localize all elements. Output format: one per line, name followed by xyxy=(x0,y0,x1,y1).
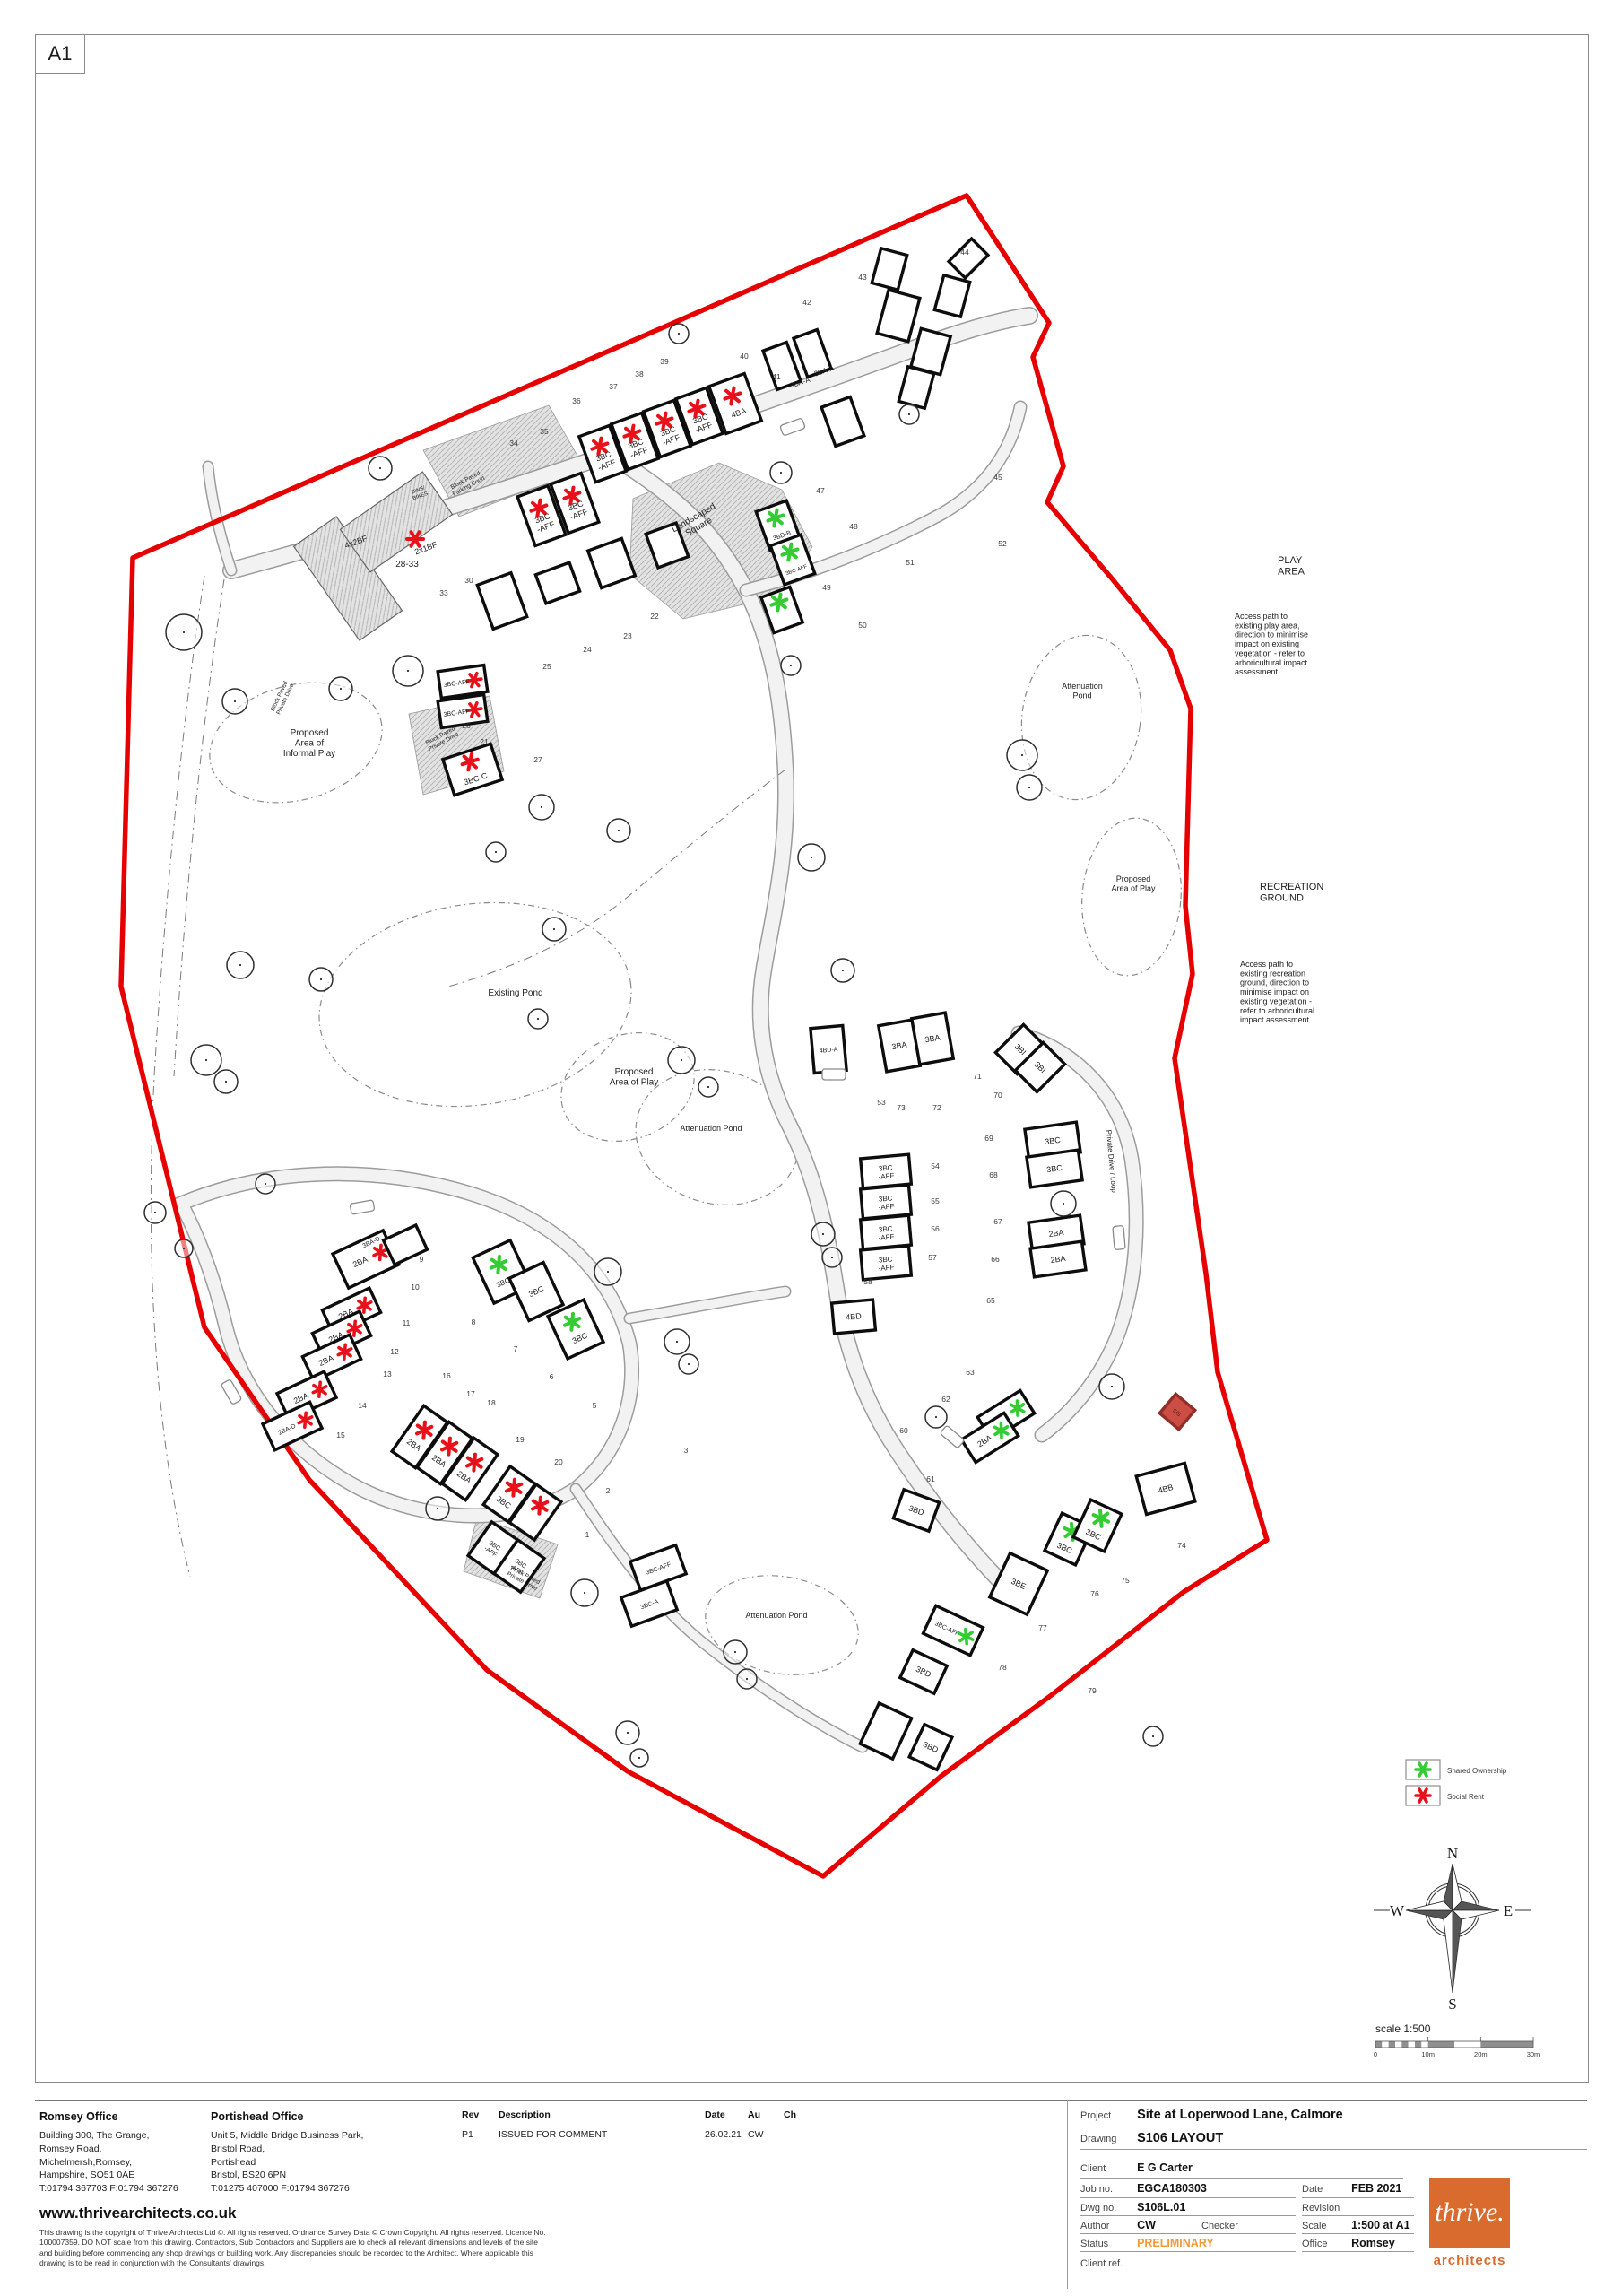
svg-text:scale 1:500: scale 1:500 xyxy=(1375,2022,1431,2035)
portishead-office-title: Portishead Office xyxy=(211,2109,399,2126)
svg-text:57: 57 xyxy=(928,1253,937,1262)
svg-text:35: 35 xyxy=(540,427,549,436)
svg-text:72: 72 xyxy=(932,1103,941,1112)
client-label: Client xyxy=(1080,2163,1134,2174)
svg-text:3BC-AFF: 3BC-AFF xyxy=(877,1255,894,1273)
svg-text:27: 27 xyxy=(533,755,542,764)
svg-text:50: 50 xyxy=(858,621,867,630)
svg-text:12: 12 xyxy=(390,1347,399,1356)
svg-text:70: 70 xyxy=(993,1091,1002,1100)
svg-text:3: 3 xyxy=(684,1446,689,1455)
svg-text:74: 74 xyxy=(1177,1541,1186,1550)
date-label: Date xyxy=(1302,2184,1349,2195)
rev-cell: P1 xyxy=(462,2129,473,2140)
svg-text:10m: 10m xyxy=(1421,2050,1435,2058)
romsey-office-line: Romsey Road, xyxy=(39,2143,205,2156)
svg-text:ProposedArea of Play: ProposedArea of Play xyxy=(610,1067,658,1088)
svg-text:AttenuationPond: AttenuationPond xyxy=(1062,682,1103,700)
svg-text:Block PavedPrivate Drive: Block PavedPrivate Drive xyxy=(270,680,296,716)
rule xyxy=(1080,2178,1403,2179)
svg-text:44: 44 xyxy=(960,248,969,257)
status-label: Status xyxy=(1080,2239,1134,2249)
svg-text:62: 62 xyxy=(941,1395,950,1404)
thrive-logo: thrive. xyxy=(1429,2178,1510,2248)
svg-text:ProposedArea ofInformal Play: ProposedArea ofInformal Play xyxy=(283,728,335,759)
checker-row: Checker xyxy=(1201,2219,1296,2231)
date-value: FEB 2021 xyxy=(1351,2182,1401,2195)
drawing-sheet: A1 3BC-AFF3BC-AFF3BC-AFF3BC-AFF3BC-AFF3B… xyxy=(0,0,1622,2296)
rule xyxy=(1080,2215,1296,2216)
svg-text:41: 41 xyxy=(772,372,781,381)
svg-text:58: 58 xyxy=(863,1277,872,1286)
project-value: Site at Loperwood Lane, Calmore xyxy=(1137,2108,1343,2122)
svg-text:W: W xyxy=(1390,1902,1405,1919)
svg-text:37: 37 xyxy=(609,382,618,391)
svg-text:18: 18 xyxy=(487,1398,496,1407)
svg-text:48: 48 xyxy=(849,522,858,531)
thrive-logo-sub: architects xyxy=(1429,2253,1510,2268)
svg-text:25: 25 xyxy=(542,662,551,671)
checker-label: Checker xyxy=(1201,2221,1255,2231)
rule xyxy=(1302,2197,1414,2198)
compass-rose: NESW xyxy=(1374,1845,1531,2013)
office-label: Office xyxy=(1302,2239,1349,2249)
svg-text:26: 26 xyxy=(462,721,471,730)
job-row: Job no. EGCA180303 xyxy=(1080,2182,1296,2195)
svg-text:11: 11 xyxy=(403,1318,411,1327)
client-row: Client E G Carter xyxy=(1080,2161,1403,2174)
status-row: Status PRELIMINARY xyxy=(1080,2237,1296,2249)
author-value: CW xyxy=(1137,2219,1156,2231)
svg-text:79: 79 xyxy=(1088,1686,1097,1695)
clientref-row: Client ref. xyxy=(1080,2257,1296,2269)
svg-text:13: 13 xyxy=(383,1370,392,1378)
svg-text:75: 75 xyxy=(1121,1576,1130,1585)
revision-row: Revision xyxy=(1302,2201,1414,2213)
rule xyxy=(1302,2251,1414,2252)
project-label: Project xyxy=(1080,2110,1134,2121)
svg-text:39: 39 xyxy=(660,357,669,366)
scale-label: Scale xyxy=(1302,2221,1349,2231)
rev-col-header: Date xyxy=(705,2109,725,2120)
office-value: Romsey xyxy=(1351,2237,1395,2249)
svg-text:N: N xyxy=(1447,1845,1458,1862)
svg-text:52: 52 xyxy=(998,539,1007,548)
svg-text:53: 53 xyxy=(877,1098,886,1107)
scale-bar: scale 1:500010m20m30m xyxy=(1374,2022,1540,2058)
svg-text:24: 24 xyxy=(583,645,592,654)
svg-text:14: 14 xyxy=(358,1401,367,1410)
svg-text:RECREATIONGROUND: RECREATIONGROUND xyxy=(1260,882,1323,904)
svg-text:ProposedArea of Play: ProposedArea of Play xyxy=(1111,874,1156,892)
svg-text:56: 56 xyxy=(931,1224,940,1233)
svg-text:17: 17 xyxy=(466,1389,475,1398)
svg-text:30m: 30m xyxy=(1527,2050,1540,2058)
svg-text:20: 20 xyxy=(554,1457,563,1466)
job-label: Job no. xyxy=(1080,2184,1134,2195)
drawing-row: Drawing S106 LAYOUT xyxy=(1080,2131,1587,2145)
rev-cell: CW xyxy=(748,2129,764,2140)
svg-text:9: 9 xyxy=(420,1255,424,1264)
svg-text:71: 71 xyxy=(973,1072,982,1081)
romsey-office-block: Romsey Office Building 300, The Grange, … xyxy=(39,2109,205,2196)
legend: Shared OwnershipSocial Rent xyxy=(1406,1760,1507,1805)
svg-text:30: 30 xyxy=(464,576,473,585)
svg-text:42: 42 xyxy=(802,298,811,307)
rule xyxy=(1080,2126,1587,2126)
office-row: Office Romsey xyxy=(1302,2237,1414,2249)
scale-value: 1:500 at A1 xyxy=(1351,2219,1410,2231)
svg-text:7: 7 xyxy=(514,1344,518,1353)
client-value: E G Carter xyxy=(1137,2161,1193,2174)
rev-col-header: Au xyxy=(748,2109,760,2120)
rev-col-header: Ch xyxy=(784,2109,796,2120)
svg-text:20m: 20m xyxy=(1474,2050,1488,2058)
rev-cell: ISSUED FOR COMMENT xyxy=(499,2129,607,2140)
rule xyxy=(1080,2251,1296,2252)
site-plan-svg: 3BC-AFF3BC-AFF3BC-AFF3BC-AFF3BC-AFF3BC-A… xyxy=(0,0,1622,2296)
svg-text:47: 47 xyxy=(816,486,825,495)
svg-text:45: 45 xyxy=(993,473,1002,482)
svg-text:Private Drive / Loop: Private Drive / Loop xyxy=(1105,1129,1118,1193)
svg-text:1: 1 xyxy=(585,1530,590,1539)
svg-text:5: 5 xyxy=(593,1401,597,1410)
rule xyxy=(1302,2233,1414,2234)
svg-text:Existing Pond: Existing Pond xyxy=(488,988,542,998)
svg-text:67: 67 xyxy=(993,1217,1002,1226)
svg-text:21: 21 xyxy=(480,737,489,746)
svg-text:10: 10 xyxy=(411,1283,420,1291)
rule xyxy=(1080,2197,1296,2198)
svg-text:8: 8 xyxy=(472,1318,476,1326)
author-label: Author xyxy=(1080,2221,1134,2231)
svg-text:Access path toexisting recreat: Access path toexisting recreationground,… xyxy=(1240,960,1314,1024)
svg-text:E: E xyxy=(1504,1902,1513,1919)
svg-text:40: 40 xyxy=(740,352,749,361)
portishead-office-line: Bristol, BS20 6PN xyxy=(211,2169,399,2182)
dwg-value: S106L.01 xyxy=(1137,2201,1185,2213)
romsey-office-line: Michelmersh,Romsey, xyxy=(39,2156,205,2170)
svg-text:38: 38 xyxy=(635,370,644,378)
portishead-office-line: T:01275 407000 F:01794 367276 xyxy=(211,2182,399,2196)
svg-text:PLAYAREA: PLAYAREA xyxy=(1278,555,1305,578)
svg-text:76: 76 xyxy=(1090,1589,1099,1598)
portishead-office-line: Portishead xyxy=(211,2156,399,2170)
revision-label: Revision xyxy=(1302,2203,1349,2213)
romsey-office-line: Hampshire, SO51 0AE xyxy=(39,2169,205,2182)
thrive-logo-word: thrive. xyxy=(1435,2197,1504,2228)
copyright-disclaimer: This drawing is the copyright of Thrive … xyxy=(39,2228,546,2269)
svg-text:61: 61 xyxy=(926,1474,935,1483)
svg-text:Attenuation Pond: Attenuation Pond xyxy=(680,1124,742,1133)
svg-text:Access path toexisting play ar: Access path toexisting play area,directi… xyxy=(1235,612,1308,676)
scale-row: Scale 1:500 at A1 xyxy=(1302,2219,1414,2231)
job-value: EGCA180303 xyxy=(1137,2182,1207,2195)
svg-text:60: 60 xyxy=(899,1426,908,1435)
svg-text:23: 23 xyxy=(623,631,632,640)
svg-text:51: 51 xyxy=(906,558,915,567)
titleblock-divider xyxy=(1067,2100,1068,2289)
site-boundary-line xyxy=(121,196,1267,1876)
svg-text:2: 2 xyxy=(606,1486,611,1495)
svg-text:73: 73 xyxy=(897,1103,906,1112)
romsey-office-line: T:01794 367703 F:01794 367276 xyxy=(39,2182,205,2196)
svg-text:78: 78 xyxy=(998,1663,1007,1672)
svg-text:4BD: 4BD xyxy=(846,1311,863,1322)
dwg-label: Dwg no. xyxy=(1080,2203,1134,2213)
svg-text:43: 43 xyxy=(858,273,867,282)
svg-text:Shared Ownership: Shared Ownership xyxy=(1447,1767,1507,1775)
portishead-office-line: Bristol Road, xyxy=(211,2143,399,2156)
svg-text:22: 22 xyxy=(650,612,659,621)
svg-text:36: 36 xyxy=(572,396,581,405)
author-row: Author CW xyxy=(1080,2219,1197,2231)
svg-text:Social Rent: Social Rent xyxy=(1447,1793,1485,1801)
svg-text:Attenuation Pond: Attenuation Pond xyxy=(745,1611,807,1620)
portishead-office-block: Portishead Office Unit 5, Middle Bridge … xyxy=(211,2109,399,2196)
status-badge: PRELIMINARY xyxy=(1137,2237,1214,2249)
romsey-office-title: Romsey Office xyxy=(39,2109,205,2126)
rule xyxy=(1080,2233,1296,2234)
portishead-office-line: Unit 5, Middle Bridge Business Park, xyxy=(211,2129,399,2143)
titleblock-top-rule xyxy=(35,2100,1587,2101)
sheet-format-badge: A1 xyxy=(35,34,85,74)
svg-text:33: 33 xyxy=(439,588,448,597)
svg-text:3BC-AFF: 3BC-AFF xyxy=(877,1224,894,1242)
clientref-label: Client ref. xyxy=(1080,2258,1143,2269)
rev-col-header: Rev xyxy=(462,2109,479,2120)
website-link[interactable]: www.thrivearchitects.co.uk xyxy=(39,2205,237,2222)
svg-text:55: 55 xyxy=(931,1196,940,1205)
project-row: Project Site at Loperwood Lane, Calmore xyxy=(1080,2108,1587,2122)
svg-text:49: 49 xyxy=(822,583,831,592)
svg-text:28-33: 28-33 xyxy=(395,560,419,570)
svg-text:15: 15 xyxy=(336,1431,345,1439)
svg-text:3BC-AFF: 3BC-AFF xyxy=(877,1163,894,1181)
svg-text:68: 68 xyxy=(989,1170,998,1179)
svg-text:0: 0 xyxy=(1374,2050,1377,2058)
svg-text:16: 16 xyxy=(442,1371,451,1380)
svg-text:69: 69 xyxy=(984,1134,993,1143)
date-row: Date FEB 2021 xyxy=(1302,2182,1414,2195)
rule xyxy=(1302,2215,1414,2216)
svg-text:S: S xyxy=(1448,1996,1456,2013)
svg-text:19: 19 xyxy=(516,1435,525,1444)
drawing-value: S106 LAYOUT xyxy=(1137,2131,1223,2145)
drawing-label: Drawing xyxy=(1080,2134,1134,2144)
svg-text:77: 77 xyxy=(1038,1623,1047,1632)
rev-cell: 26.02.21 xyxy=(705,2129,742,2140)
romsey-office-line: Building 300, The Grange, xyxy=(39,2129,205,2143)
rev-col-header: Description xyxy=(499,2109,551,2120)
dwg-row: Dwg no. S106L.01 xyxy=(1080,2201,1296,2213)
svg-text:34: 34 xyxy=(509,439,518,448)
sheet-format-label: A1 xyxy=(48,42,73,65)
svg-text:65: 65 xyxy=(986,1296,995,1305)
rule xyxy=(1080,2149,1587,2150)
svg-text:63: 63 xyxy=(966,1368,975,1377)
svg-text:3BC-AFF: 3BC-AFF xyxy=(877,1194,894,1212)
svg-text:54: 54 xyxy=(931,1161,940,1170)
svg-text:66: 66 xyxy=(991,1255,1000,1264)
svg-text:6: 6 xyxy=(550,1372,554,1381)
